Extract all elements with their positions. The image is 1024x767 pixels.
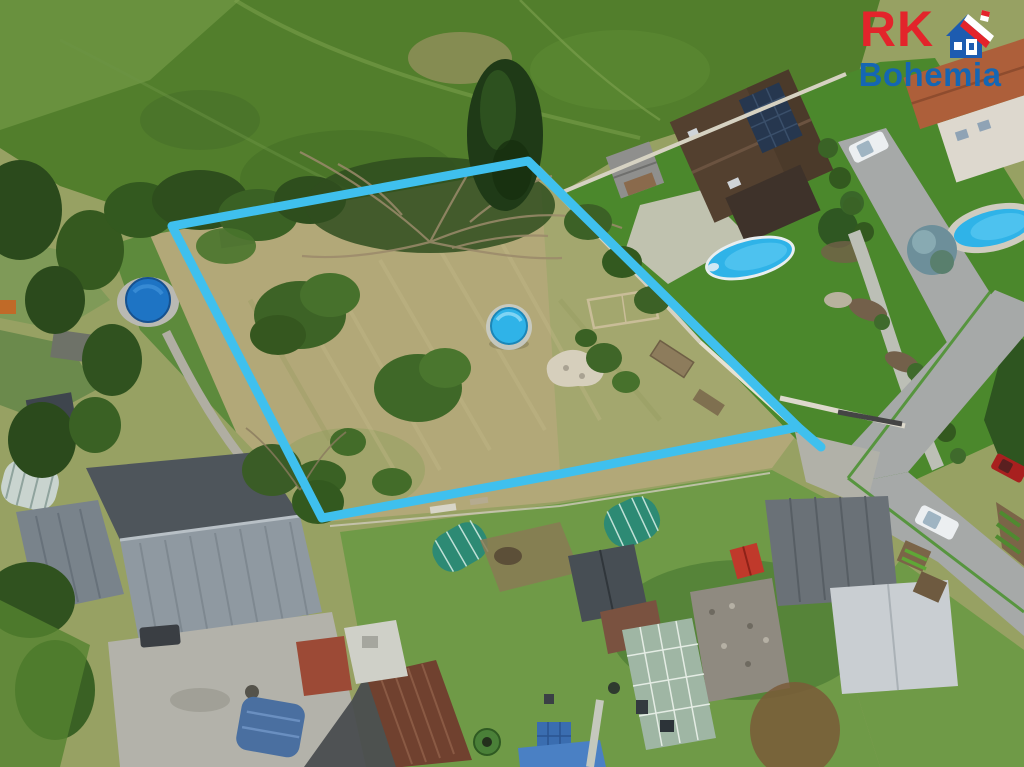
rock-garden <box>824 292 852 308</box>
logo-rk-text: RK <box>860 4 934 54</box>
logo-bohemia-text: Bohemia <box>859 58 1002 91</box>
orange-machine <box>0 300 16 314</box>
conifer <box>467 59 543 211</box>
aerial-scene <box>0 0 1024 767</box>
logo-house-icon <box>936 6 1000 62</box>
blue-spruce <box>907 225 957 275</box>
tarp-covered-car <box>234 695 306 759</box>
aerial-photo: RK Bohemia <box>0 0 1024 767</box>
agency-watermark: RK Bohemia <box>846 4 1014 91</box>
small-red-roof <box>296 636 352 696</box>
dark-car <box>139 624 181 647</box>
plot-pool <box>486 304 532 350</box>
